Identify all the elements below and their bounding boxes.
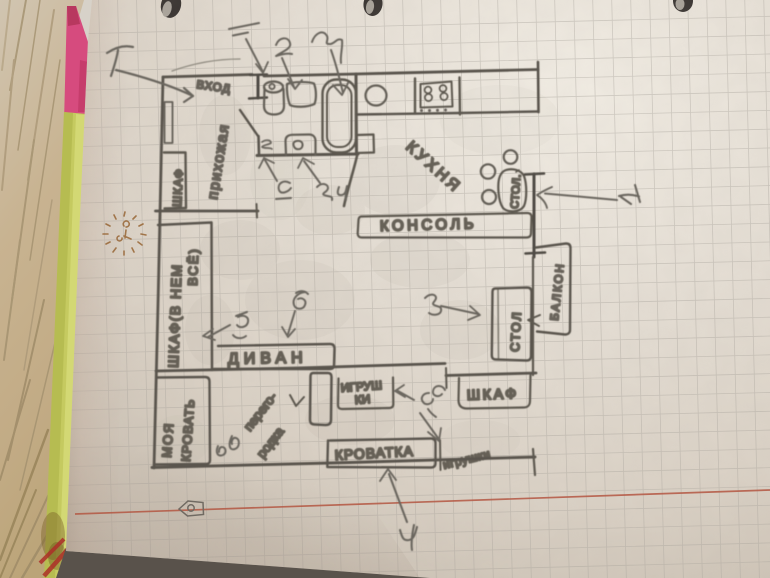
svg-text:ДИВАН: ДИВАН <box>228 350 308 368</box>
svg-text:СТОЛ.: СТОЛ. <box>509 173 523 209</box>
svg-text:МОЯ: МОЯ <box>159 421 176 458</box>
svg-text:ШКАФ: ШКАФ <box>170 168 186 207</box>
svg-text:ВСЁ): ВСЁ) <box>185 247 201 286</box>
svg-text:СТОЛ: СТОЛ <box>508 310 524 352</box>
svg-text:ШКАФ: ШКАФ <box>467 386 519 404</box>
svg-text:КОНСОЛЬ: КОНСОЛЬ <box>380 215 478 235</box>
svg-text:КИ: КИ <box>354 392 371 407</box>
